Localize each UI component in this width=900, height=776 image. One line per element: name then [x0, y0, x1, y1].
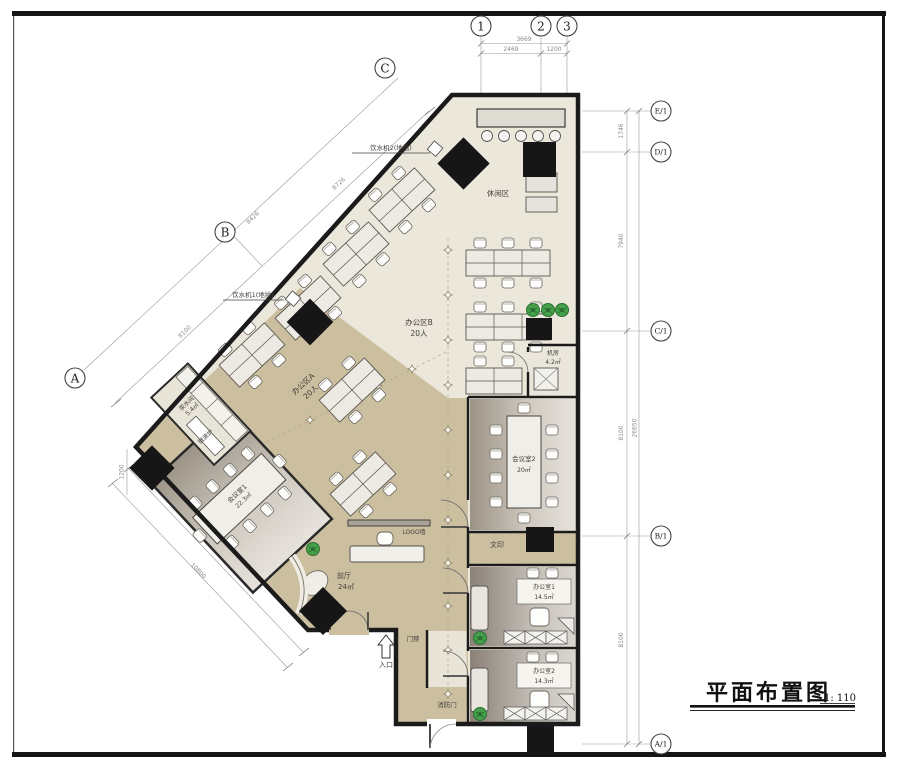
grid-bubble-2: 2: [537, 20, 545, 34]
office1-sofa: [471, 586, 488, 630]
dim-lower-vertical: 1200: [119, 464, 126, 479]
grid-bubble-b: B: [221, 226, 230, 240]
office1-chair: [530, 608, 549, 626]
dim-top-seg1: 2469: [503, 46, 518, 53]
water-dispenser-2-label: 饮水机2(地插): [370, 143, 412, 152]
floor-plan-canvas: 3669 2469 1200 1 2 3 1746 7940 8100 8100…: [0, 0, 900, 776]
meeting2-area: 20㎡: [517, 466, 531, 474]
grid-bubble-1: 1: [477, 20, 485, 34]
drawing-scale: 1: 110: [824, 693, 856, 704]
lobby-label: 前厅: [337, 571, 351, 580]
reception-desk: [350, 546, 424, 562]
reception-chair: [377, 532, 393, 545]
dim-right-total: 26650: [632, 418, 639, 437]
server-room-label: 机房: [547, 349, 559, 357]
office1-area: 14.5㎡: [534, 593, 553, 601]
drawing-title: 平面布置图: [706, 680, 831, 706]
dim-right-seg3: 8100: [618, 425, 625, 440]
logo-wall: [348, 520, 430, 526]
fire-door-label: 消防门: [437, 700, 457, 709]
entrance-label: 入口: [379, 661, 393, 669]
office-b-label: 办公区B: [405, 317, 433, 327]
office2-chair: [530, 691, 549, 709]
column-leisure: [523, 142, 556, 177]
water-dispenser-1-label: 饮水机1(地插): [232, 290, 274, 299]
office2-area: 14.3㎡: [534, 677, 553, 685]
office2-cabinets: [504, 707, 567, 720]
floor-print-band: [468, 532, 578, 565]
print-area-label: 文印: [490, 540, 504, 549]
office-b-capacity: 20人: [410, 329, 428, 338]
door-access-label: 门禁: [407, 634, 421, 643]
dim-top-seg2: 1200: [546, 46, 561, 53]
grid-bubble-c1: C/1: [654, 327, 667, 336]
grid-bubble-e1: E/1: [655, 107, 668, 116]
lobby-area: 24㎡: [338, 583, 354, 591]
office1-label: 办公室1: [533, 583, 555, 591]
office2-label: 办公室2: [533, 667, 555, 675]
grid-bubble-d1: D/1: [654, 148, 667, 157]
grid-bubble-a1: A/1: [654, 740, 668, 749]
dim-top-total: 3669: [516, 36, 531, 43]
leisure-sofa-2: [526, 197, 557, 212]
server-room-area: 4.2㎡: [545, 358, 561, 366]
grid-bubble-c: C: [380, 62, 389, 76]
grid-bubble-b1: B/1: [655, 532, 668, 541]
dim-right-seg2: 7940: [618, 233, 625, 248]
office2-sofa: [471, 668, 488, 712]
logo-wall-label: LOGO墙: [402, 528, 425, 536]
dim-right-seg1: 1746: [618, 123, 625, 138]
column-bottom-exterior: [527, 726, 554, 752]
column-server-top: [526, 318, 552, 340]
meeting2-label: 会议室2: [512, 454, 536, 463]
lobby-door-opening: [329, 625, 369, 635]
grid-bubble-3: 3: [563, 20, 571, 34]
dim-right-seg4: 8100: [618, 632, 625, 647]
drawing-sheet: 3669 2469 1200 1 2 3 1746 7940 8100 8100…: [0, 0, 900, 776]
office1-cabinets: [504, 631, 567, 644]
bar-counter: [477, 109, 565, 127]
column-print-band: [526, 527, 554, 552]
leisure-area-label: 休闲区: [487, 188, 510, 198]
grid-bubble-a: A: [70, 372, 80, 386]
